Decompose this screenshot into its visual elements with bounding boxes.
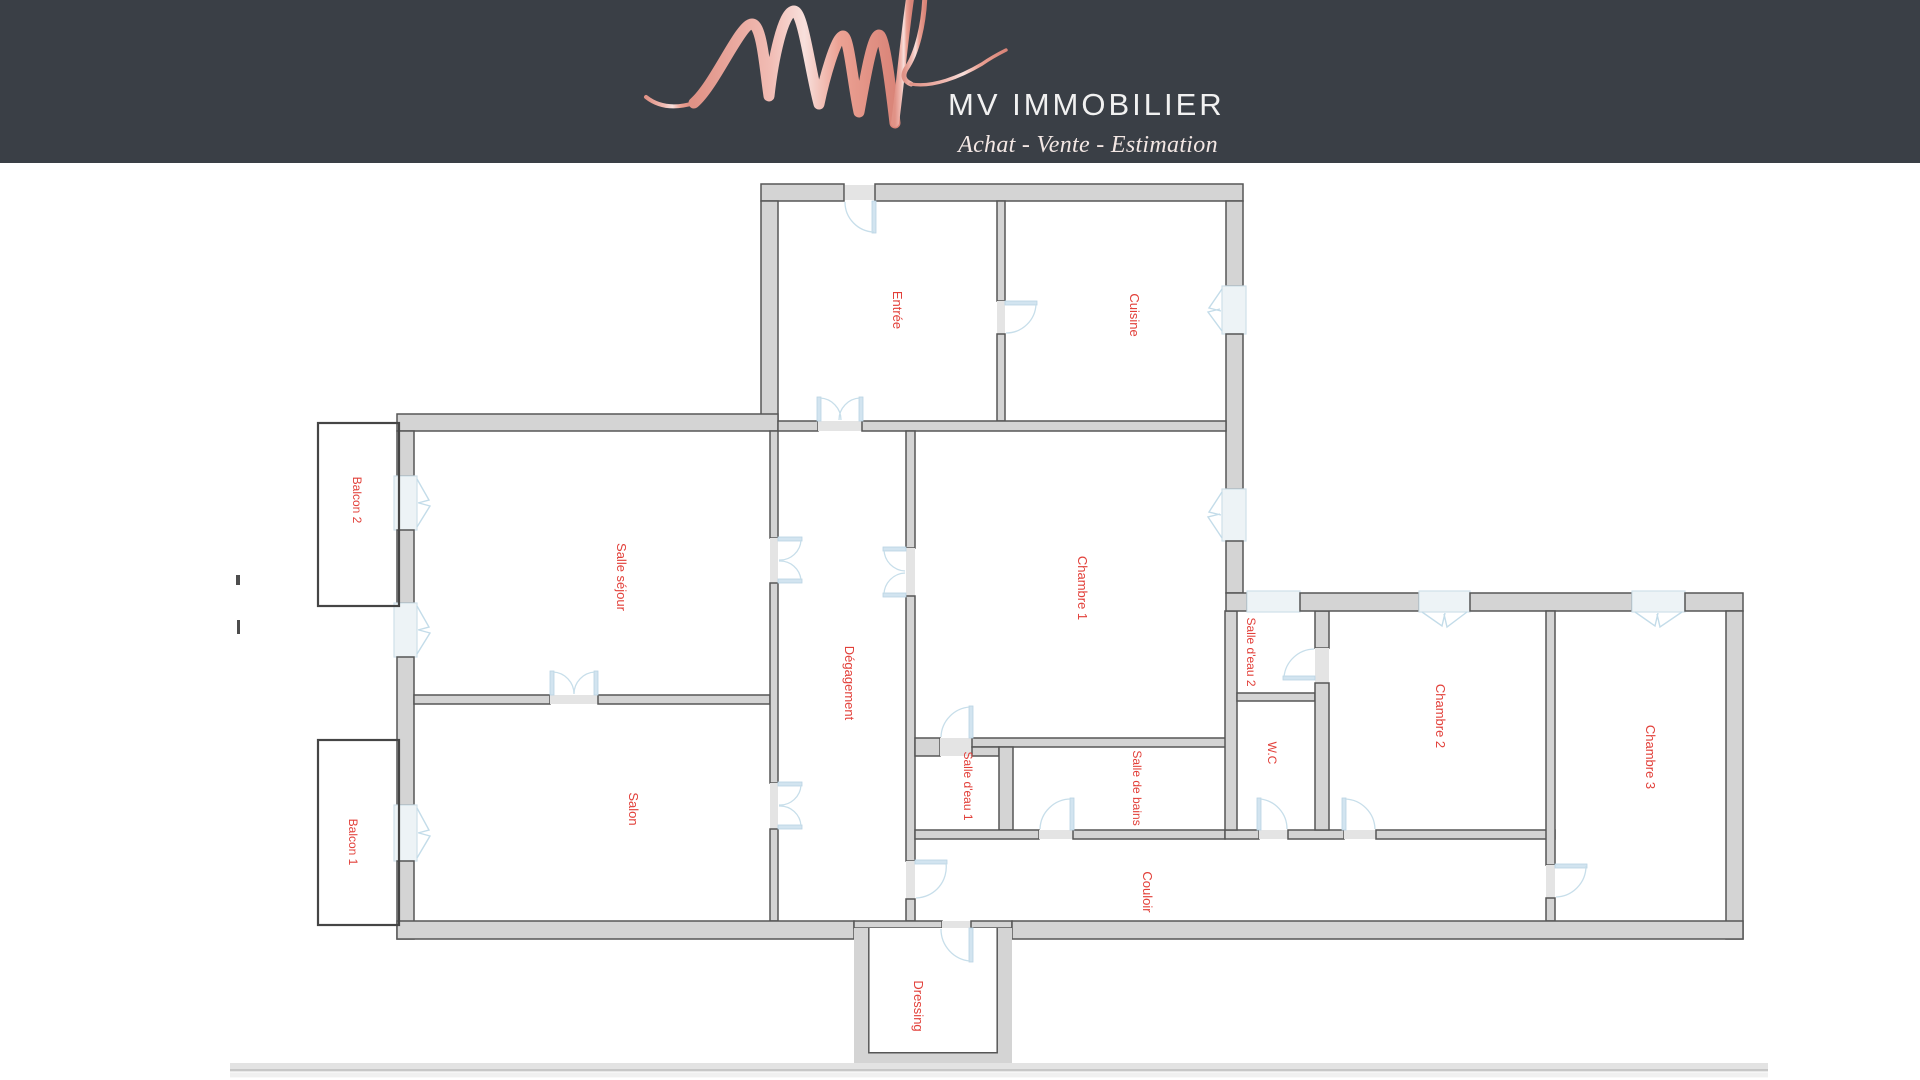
svg-text:Achat - Vente - Estimation: Achat - Vente - Estimation (956, 132, 1218, 158)
svg-text:Dégagement: Dégagement (842, 646, 857, 721)
svg-text:Chambre 2: Chambre 2 (1433, 684, 1448, 748)
svg-text:Salle d'eau 2: Salle d'eau 2 (1244, 617, 1258, 686)
svg-text:Balcon 1: Balcon 1 (346, 819, 360, 866)
svg-text:Balcon 2: Balcon 2 (350, 477, 364, 524)
svg-text:MV IMMOBILIER: MV IMMOBILIER (948, 87, 1225, 122)
svg-text:Chambre 3: Chambre 3 (1643, 725, 1658, 789)
svg-text:Salle de bains: Salle de bains (1130, 750, 1144, 825)
svg-text:Salle d'eau 1: Salle d'eau 1 (961, 751, 975, 820)
svg-text:Cuisine: Cuisine (1127, 293, 1142, 336)
svg-text:Dressing: Dressing (911, 980, 926, 1031)
svg-text:W.C: W.C (1265, 742, 1279, 765)
svg-text:Couloir: Couloir (1140, 871, 1155, 913)
svg-text:Salon: Salon (626, 792, 641, 825)
svg-text:Salle séjour: Salle séjour (614, 543, 629, 612)
svg-text:Entrée: Entrée (890, 291, 905, 329)
svg-text:Chambre 1: Chambre 1 (1075, 556, 1090, 620)
